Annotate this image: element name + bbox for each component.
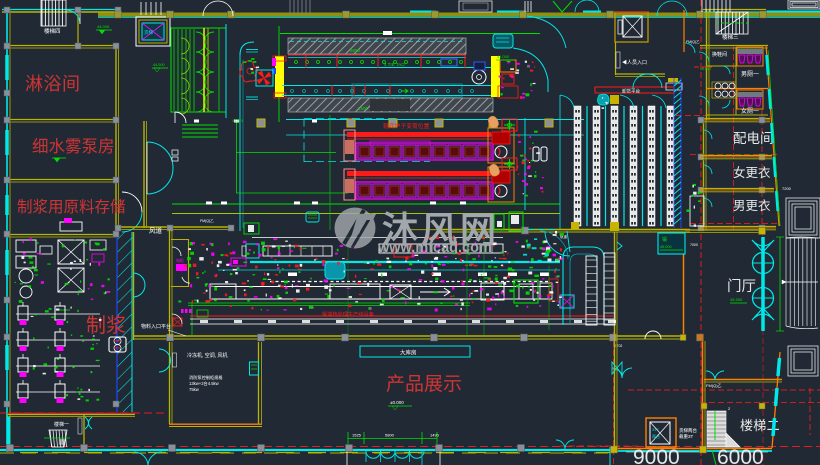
- svg-text:9000: 9000: [633, 446, 680, 465]
- svg-text:消防泵控制柜规格: 消防泵控制柜规格: [189, 374, 223, 381]
- svg-text:载重3T: 载重3T: [679, 433, 694, 440]
- svg-text:www.mfcad.com: www.mfcad.com: [377, 240, 492, 256]
- svg-text:制浆用原料存储: 制浆用原料存储: [17, 198, 126, 216]
- svg-text:楼梯三: 楼梯三: [722, 33, 739, 41]
- svg-text:1500: 1500: [358, 106, 369, 111]
- svg-text:细水雾泵房: 细水雾泵房: [32, 137, 115, 156]
- svg-text:电柜: 电柜: [176, 257, 184, 263]
- svg-text:女厕一: 女厕一: [741, 107, 759, 115]
- svg-text:45.000: 45.000: [700, 67, 711, 71]
- svg-text:物料入口平台: 物料入口平台: [141, 323, 171, 330]
- svg-text:配电间: 配电间: [733, 131, 774, 146]
- svg-text:楼梯一: 楼梯一: [54, 421, 69, 428]
- svg-text:5650: 5650: [350, 48, 361, 53]
- svg-text:5800: 5800: [385, 433, 395, 438]
- svg-text:制浆: 制浆: [86, 314, 126, 337]
- svg-text:FM(Q)乙: FM(Q)乙: [706, 382, 722, 388]
- svg-text:货梯: 货梯: [144, 29, 153, 36]
- svg-text:44.000: 44.000: [497, 54, 510, 59]
- svg-text:4 TIE TAO: 4 TIE TAO: [384, 62, 405, 67]
- svg-text:45.000: 45.000: [660, 245, 672, 249]
- svg-text:44.000: 44.000: [153, 63, 165, 67]
- svg-text:317: 317: [652, 427, 659, 432]
- svg-text:75kw: 75kw: [189, 387, 200, 392]
- svg-text:冷冻机, 空调, 风机: 冷冻机, 空调, 风机: [187, 352, 228, 359]
- svg-text:13kw+2台4.5kw: 13kw+2台4.5kw: [189, 380, 220, 387]
- svg-text:◀人员入口: ◀人员入口: [622, 60, 647, 66]
- svg-text:辊底炉子变荷位置: 辊底炉子变荷位置: [383, 122, 430, 130]
- svg-text:淋浴间: 淋浴间: [25, 74, 81, 94]
- svg-text:两台: 两台: [652, 433, 660, 439]
- svg-text:44.000: 44.000: [97, 24, 110, 29]
- svg-text:大库房: 大库房: [400, 349, 417, 357]
- svg-text:锻造热处理生产线设备: 锻造热处理生产线设备: [322, 310, 375, 318]
- svg-text:楼梯四: 楼梯四: [44, 27, 61, 35]
- svg-text:锻: 锻: [662, 236, 667, 243]
- svg-text:±0.000: ±0.000: [390, 400, 404, 405]
- svg-text:7000: 7000: [690, 243, 698, 247]
- svg-text:换鞋间: 换鞋间: [712, 51, 727, 58]
- svg-text:产品展示: 产品展示: [386, 373, 462, 395]
- svg-text:7200: 7200: [782, 186, 792, 191]
- svg-text:货梯两台: 货梯两台: [679, 427, 697, 434]
- svg-text:6000: 6000: [717, 446, 764, 465]
- svg-text:44.000: 44.000: [232, 119, 243, 123]
- svg-text:女更衣: 女更衣: [733, 165, 771, 180]
- svg-text:KT02: KT02: [614, 344, 622, 348]
- svg-text:男厕一: 男厕一: [741, 71, 759, 78]
- svg-text:风道: 风道: [149, 226, 163, 235]
- svg-text:45.300: 45.300: [730, 297, 743, 302]
- svg-text:FM(Q)乙: FM(Q)乙: [200, 218, 214, 223]
- svg-text:1525: 1525: [352, 433, 362, 438]
- svg-text:男更衣: 男更衣: [733, 198, 771, 213]
- svg-text:卸货平台: 卸货平台: [622, 88, 640, 95]
- svg-text:1495: 1495: [430, 433, 440, 438]
- svg-text:门厅: 门厅: [727, 278, 756, 295]
